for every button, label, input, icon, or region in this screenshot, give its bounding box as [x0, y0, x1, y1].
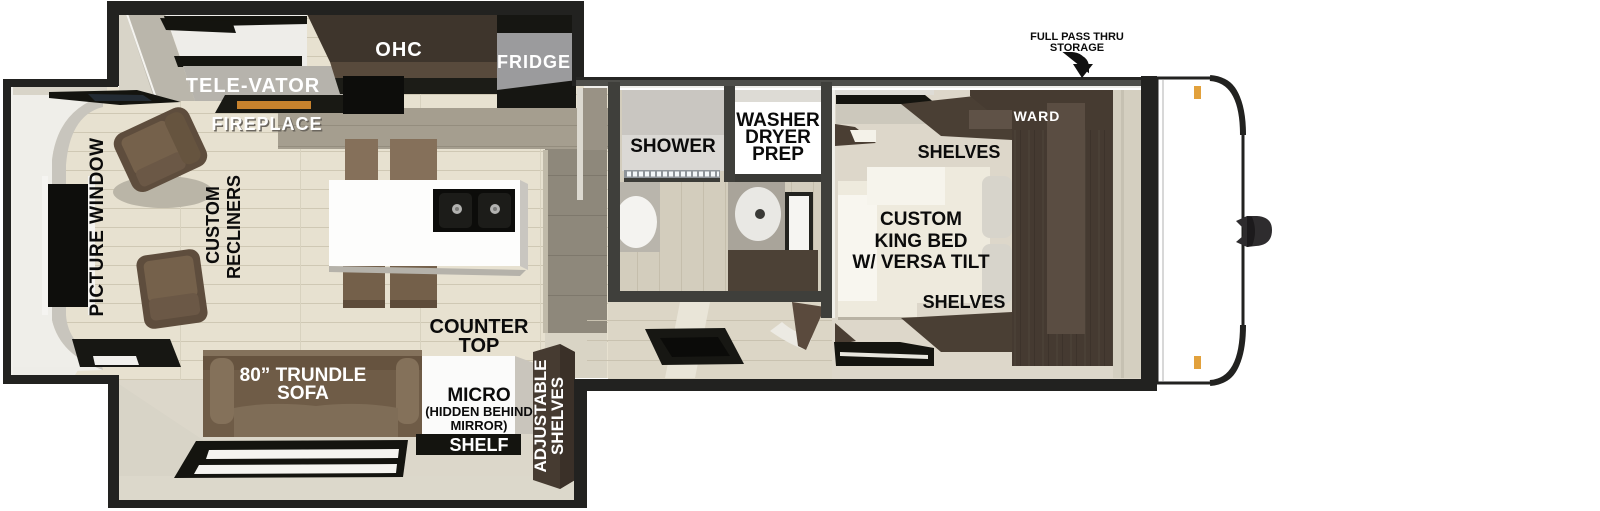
svg-text:SHELF: SHELF — [449, 435, 508, 455]
svg-text:PREP: PREP — [752, 144, 804, 165]
svg-text:SHELVES: SHELVES — [923, 292, 1006, 312]
svg-text:OHC: OHC — [375, 39, 422, 61]
svg-text:RECLINERS: RECLINERS — [224, 175, 244, 279]
svg-text:STORAGE: STORAGE — [1050, 42, 1104, 54]
svg-text:CUSTOM: CUSTOM — [203, 186, 223, 264]
svg-text:FRIDGE: FRIDGE — [497, 52, 571, 72]
svg-text:KING BED: KING BED — [875, 231, 968, 252]
svg-text:FIREPLACE: FIREPLACE — [211, 114, 322, 134]
svg-text:W/ VERSA TILT: W/ VERSA TILT — [852, 252, 990, 273]
svg-text:SHOWER: SHOWER — [630, 136, 716, 157]
svg-text:PICTURE WINDOW: PICTURE WINDOW — [87, 137, 108, 316]
svg-text:TOP: TOP — [459, 335, 500, 357]
svg-text:SHELVES: SHELVES — [548, 377, 567, 455]
svg-text:SOFA: SOFA — [277, 383, 329, 404]
svg-text:(HIDDEN BEHIND: (HIDDEN BEHIND — [425, 404, 533, 419]
svg-text:MIRROR): MIRROR) — [450, 418, 507, 433]
svg-text:TELE-VATOR: TELE-VATOR — [186, 75, 320, 97]
svg-text:CUSTOM: CUSTOM — [880, 209, 962, 230]
svg-text:MICRO: MICRO — [447, 385, 510, 406]
svg-text:SHELVES: SHELVES — [918, 142, 1001, 162]
svg-text:WARD: WARD — [1014, 108, 1061, 124]
